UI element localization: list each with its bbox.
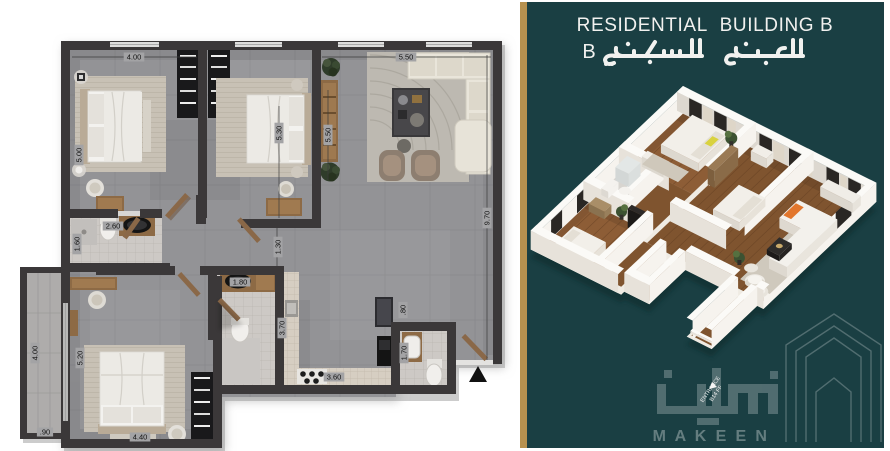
svg-text:9.70: 9.70 xyxy=(483,211,492,226)
svg-text:4.40: 4.40 xyxy=(133,433,148,442)
svg-text:.90: .90 xyxy=(40,428,50,437)
svg-text:5.00: 5.00 xyxy=(75,148,84,163)
svg-text:RESIDENTIAL BUILDING B: RESIDENTIAL BUILDING B xyxy=(577,15,834,36)
svg-text:1.60: 1.60 xyxy=(73,237,82,252)
svg-text:5.50: 5.50 xyxy=(399,53,414,62)
svg-text:1.70: 1.70 xyxy=(400,346,409,361)
svg-text:B: B xyxy=(582,41,595,63)
svg-text:1.80: 1.80 xyxy=(233,278,248,287)
svg-text:4.00: 4.00 xyxy=(127,53,142,62)
svg-text:5.20: 5.20 xyxy=(76,351,85,366)
svg-text:3.70: 3.70 xyxy=(278,321,287,336)
svg-text:3.60: 3.60 xyxy=(327,373,342,382)
svg-text:5.50: 5.50 xyxy=(324,128,333,143)
svg-text:1.30: 1.30 xyxy=(274,240,283,255)
svg-text:2.60: 2.60 xyxy=(106,222,121,231)
svg-text:4.00: 4.00 xyxy=(31,346,40,361)
svg-text:5.30: 5.30 xyxy=(275,126,284,141)
svg-text:M A K E E N: M A K E E N xyxy=(653,428,770,445)
svg-text:.80: .80 xyxy=(399,305,408,315)
